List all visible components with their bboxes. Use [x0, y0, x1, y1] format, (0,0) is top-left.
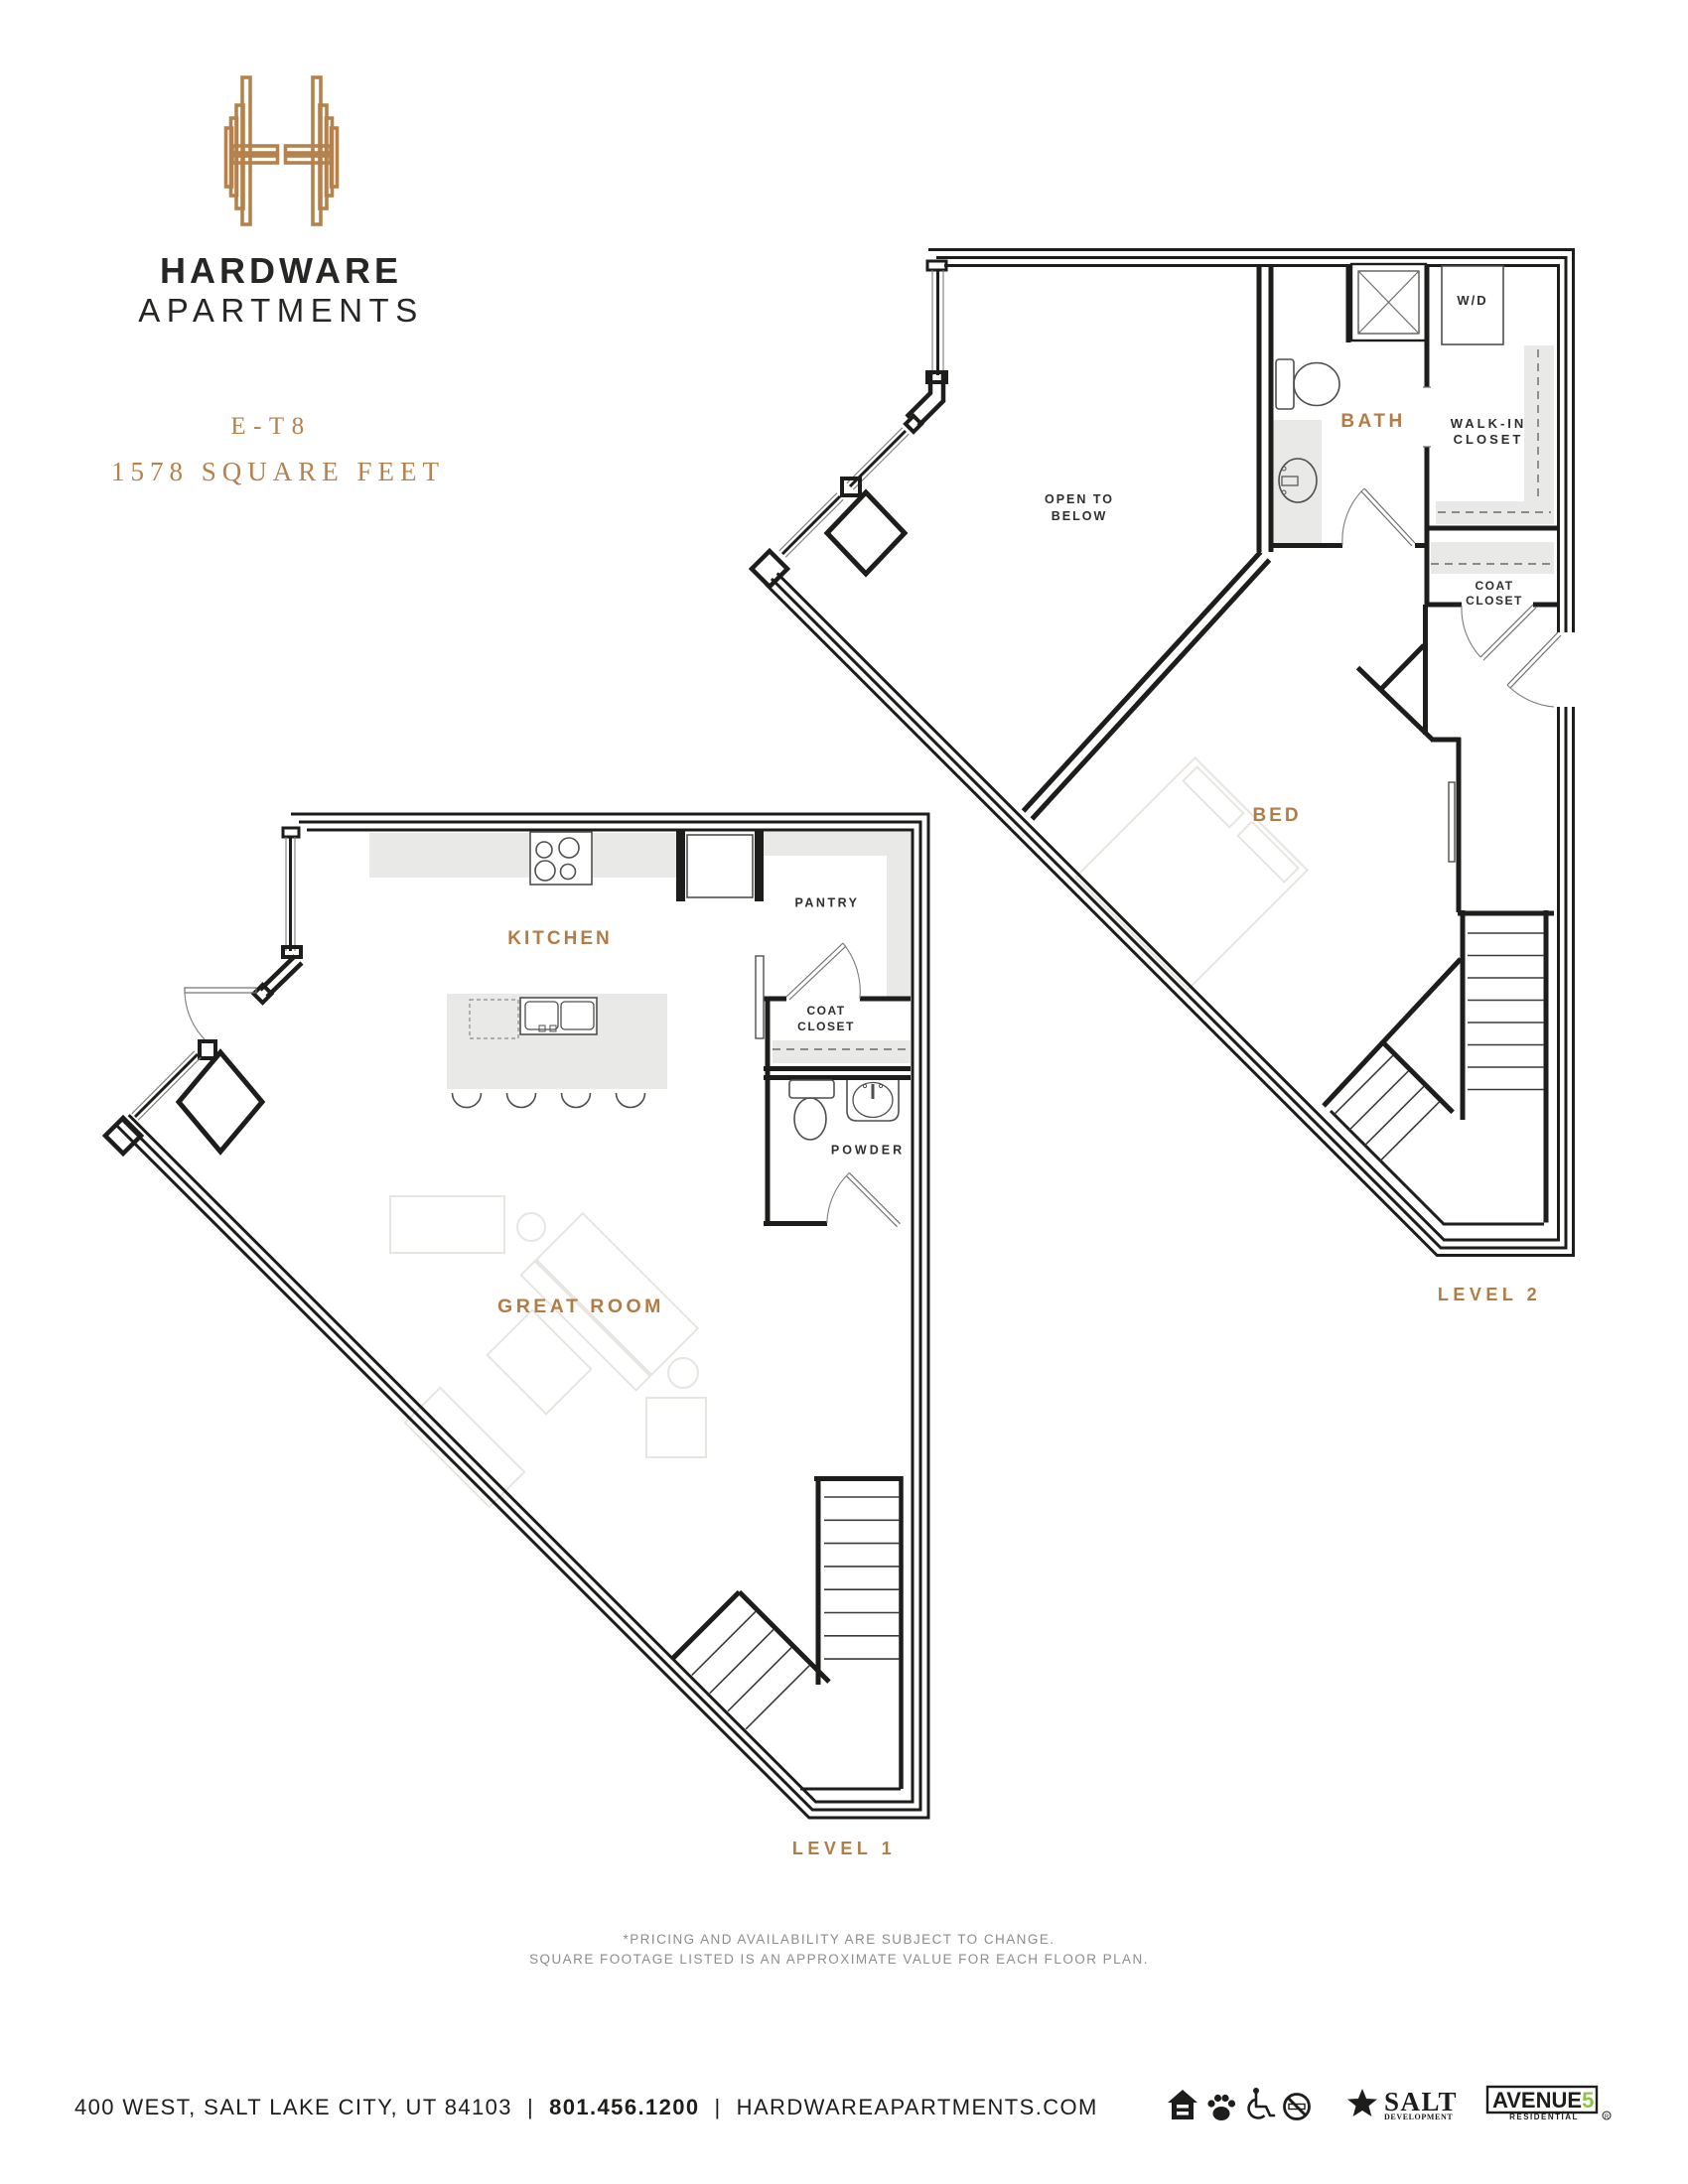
svg-text:SQUARE FOOTAGE LISTED IS AN AP: SQUARE FOOTAGE LISTED IS AN APPROXIMATE … [529, 1952, 1149, 1967]
svg-text:1578 SQUARE FEET: 1578 SQUARE FEET [111, 457, 445, 486]
svg-text:400 WEST, SALT LAKE CITY, UT 8: 400 WEST, SALT LAKE CITY, UT 84103 | 801… [74, 2095, 1098, 2119]
svg-text:E-T8: E-T8 [230, 413, 311, 440]
svg-text:PANTRY: PANTRY [795, 896, 860, 910]
svg-text:RESIDENTIAL: RESIDENTIAL [1509, 2113, 1579, 2121]
svg-text:AVENUE5: AVENUE5 [1492, 2088, 1594, 2113]
svg-text:LEVEL 2: LEVEL 2 [1438, 1285, 1541, 1304]
svg-text:R: R [1605, 2115, 1610, 2120]
svg-text:GREAT ROOM: GREAT ROOM [497, 1296, 664, 1317]
svg-text:CLOSET: CLOSET [1454, 432, 1524, 447]
svg-text:COAT: COAT [1475, 579, 1513, 593]
svg-text:BELOW: BELOW [1052, 509, 1108, 523]
svg-text:LEVEL 1: LEVEL 1 [792, 1839, 896, 1858]
svg-text:W/D: W/D [1457, 293, 1487, 308]
svg-text:COAT: COAT [806, 1004, 845, 1018]
svg-text:POWDER: POWDER [831, 1144, 905, 1158]
svg-text:DEVELOPMENT: DEVELOPMENT [1384, 2113, 1453, 2121]
svg-text:CLOSET: CLOSET [1466, 594, 1523, 608]
svg-text:*PRICING AND AVAILABILITY ARE: *PRICING AND AVAILABILITY ARE SUBJECT TO… [624, 1932, 1055, 1947]
svg-text:KITCHEN: KITCHEN [507, 928, 612, 949]
svg-text:BATH: BATH [1340, 411, 1405, 432]
svg-text:HARDWARE: HARDWARE [160, 250, 402, 291]
svg-text:BED: BED [1252, 805, 1301, 826]
svg-text:OPEN TO: OPEN TO [1045, 492, 1114, 506]
svg-text:WALK-IN: WALK-IN [1451, 416, 1527, 431]
svg-text:APARTMENTS: APARTMENTS [138, 292, 423, 329]
svg-text:CLOSET: CLOSET [797, 1020, 855, 1033]
